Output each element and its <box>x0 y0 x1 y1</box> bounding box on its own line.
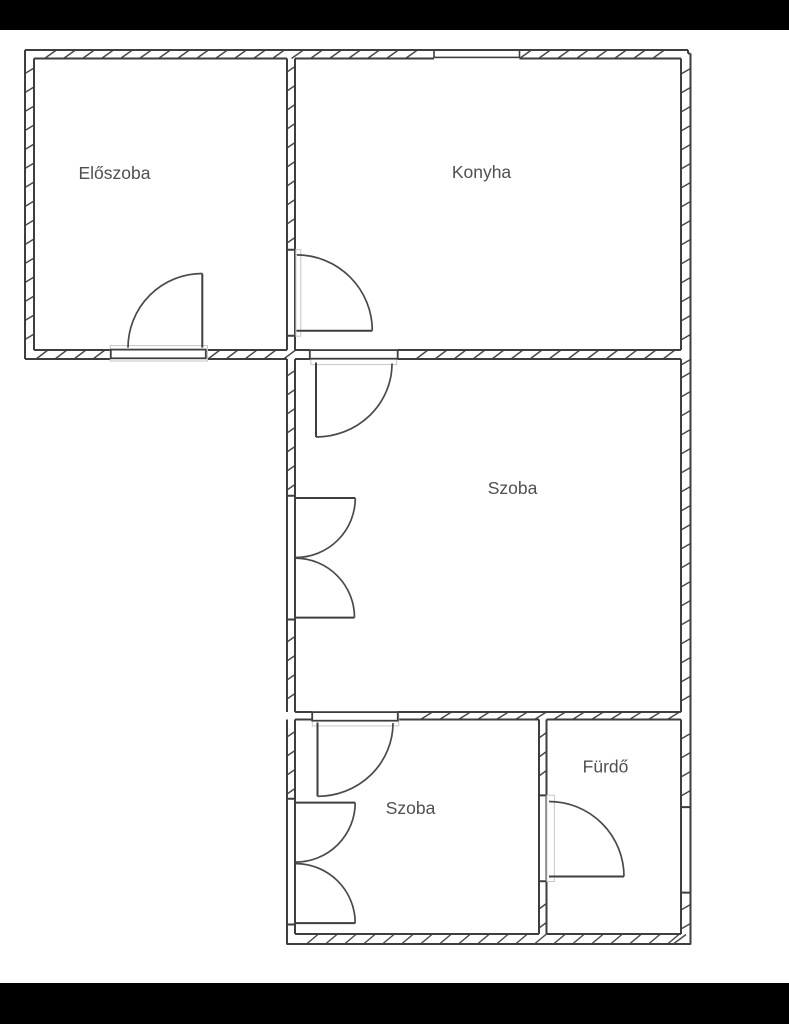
svg-text:Konyha: Konyha <box>452 162 512 182</box>
svg-text:Szoba: Szoba <box>386 798 436 818</box>
svg-text:Szoba: Szoba <box>488 478 538 498</box>
svg-text:Előszoba: Előszoba <box>79 163 151 183</box>
svg-text:Fürdő: Fürdő <box>583 757 629 777</box>
